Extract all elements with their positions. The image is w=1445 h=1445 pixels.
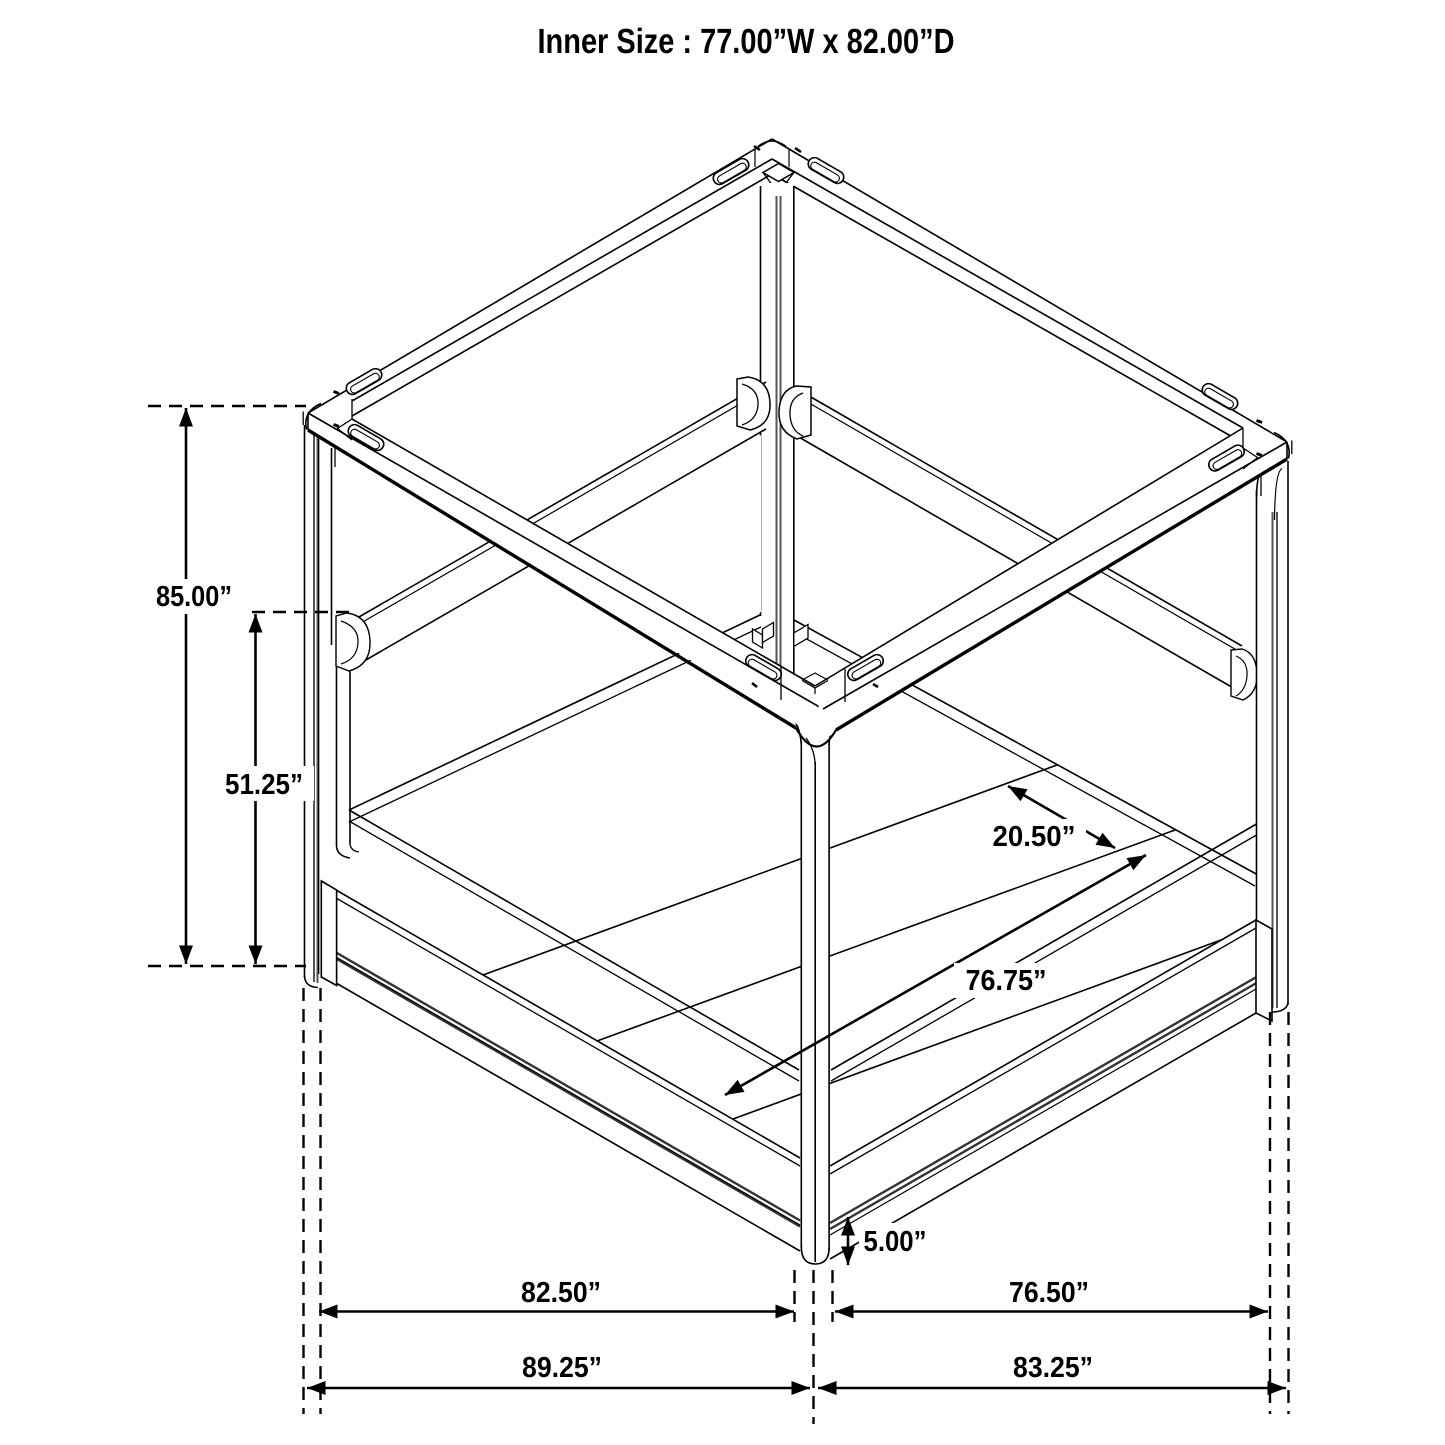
svg-text:Inner Size : 77.00”W x 82.00”D: Inner Size : 77.00”W x 82.00”D <box>538 22 955 61</box>
svg-text:20.50”: 20.50” <box>993 821 1076 853</box>
svg-text:5.00”: 5.00” <box>864 1226 927 1258</box>
svg-text:82.50”: 82.50” <box>521 1277 601 1309</box>
svg-text:76.75”: 76.75” <box>966 965 1047 997</box>
svg-text:89.25”: 89.25” <box>522 1352 602 1384</box>
svg-text:76.50”: 76.50” <box>1009 1277 1089 1309</box>
svg-text:51.25”: 51.25” <box>225 769 303 801</box>
svg-text:83.25”: 83.25” <box>1013 1352 1093 1384</box>
svg-text:85.00”: 85.00” <box>156 581 232 613</box>
